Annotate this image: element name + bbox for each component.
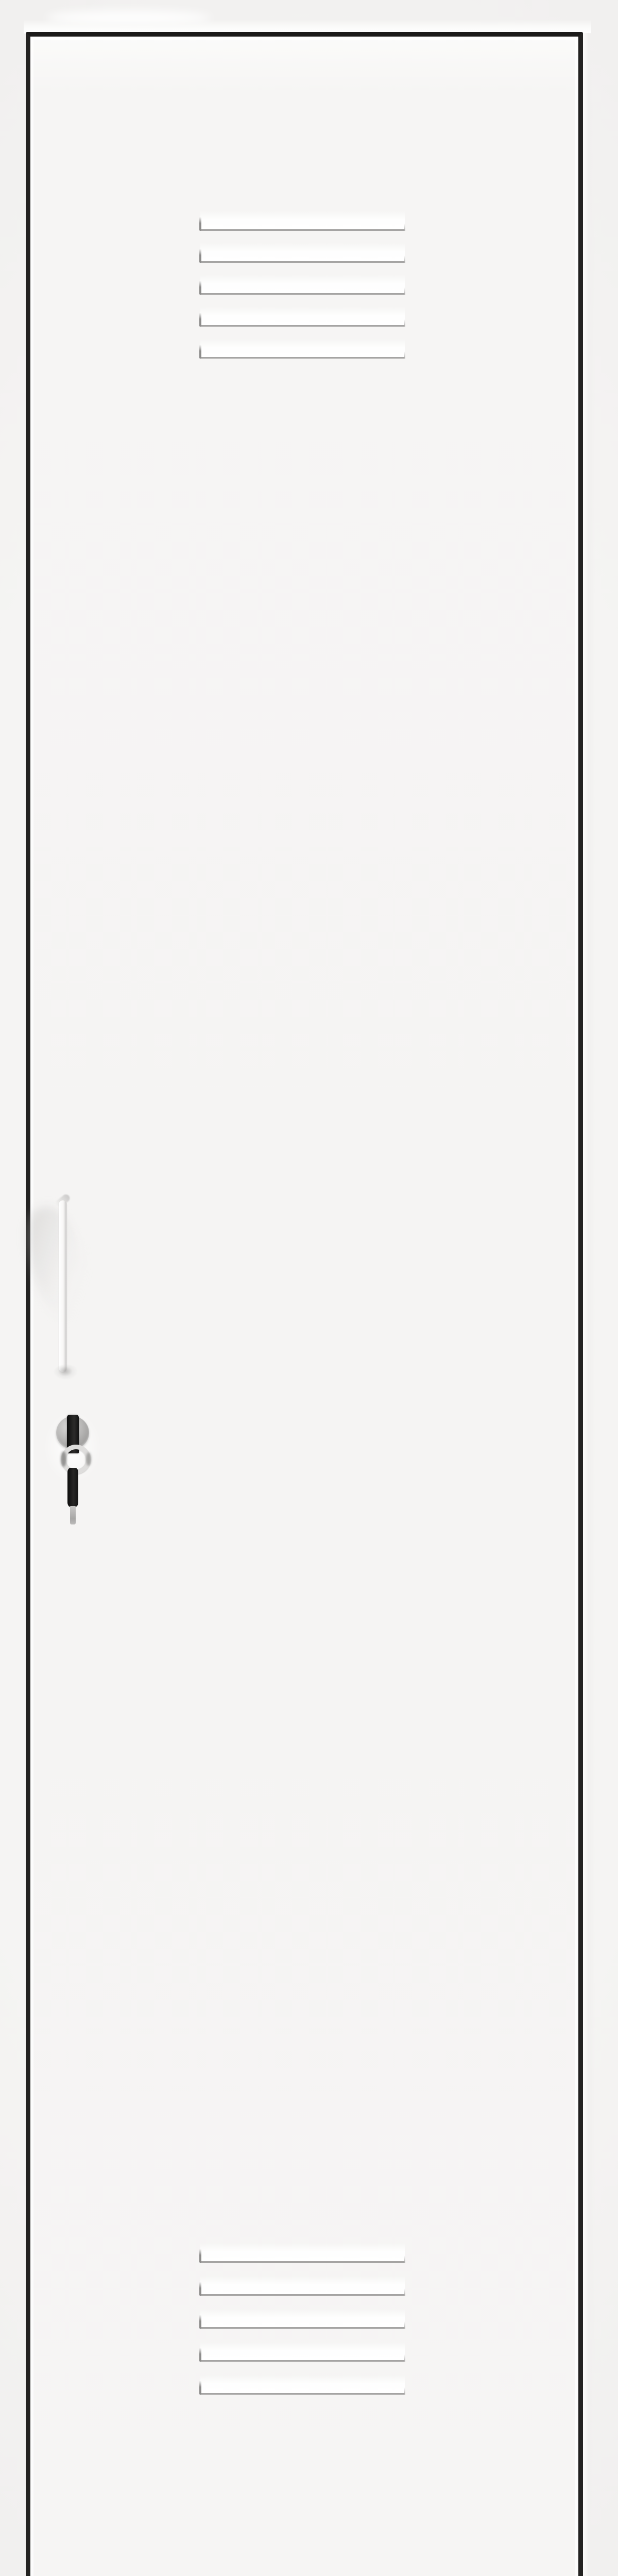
top-vent [200, 211, 405, 381]
vent-slat [200, 211, 405, 231]
lock-assembly [54, 1408, 91, 1568]
vent-slat [200, 275, 405, 295]
vent-slat [200, 2375, 405, 2395]
vent-slat [200, 2309, 405, 2329]
handle-bar [59, 1200, 67, 1372]
vent-slat [200, 2342, 405, 2362]
vent-slat [200, 307, 405, 327]
key-head [67, 1468, 78, 1507]
cabinet-right-side-panel [583, 33, 595, 2576]
key-blade-tip [70, 1506, 76, 1524]
handle-cast-shadow [16, 1200, 100, 1329]
vent-slat [200, 338, 405, 359]
vent-slat [200, 243, 405, 263]
cabinet-top-edge [24, 20, 591, 33]
bottom-vent [200, 2243, 405, 2418]
locker-door [30, 37, 578, 2576]
vent-slat [200, 2276, 405, 2296]
locker-product-photo [0, 0, 618, 2576]
door-gap-outline [26, 32, 583, 2576]
door-handle [51, 1197, 97, 1423]
handle-bottom-mount-shadow [54, 1365, 79, 1379]
vent-slat [200, 2243, 405, 2263]
